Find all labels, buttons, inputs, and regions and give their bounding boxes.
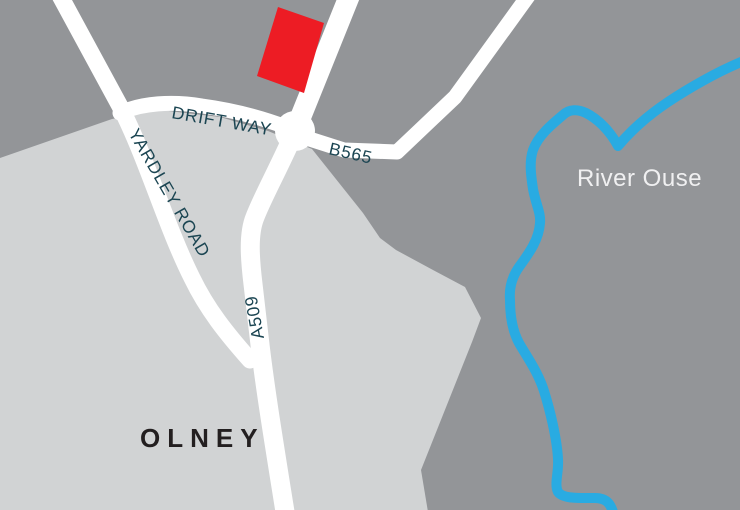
map: DRIFT WAY B565 YARDLEY ROAD A509 OLNEY R…: [0, 0, 740, 510]
river-ouse-label: River Ouse: [577, 165, 702, 192]
olney-label: OLNEY: [140, 423, 265, 453]
roundabout: [275, 111, 315, 151]
